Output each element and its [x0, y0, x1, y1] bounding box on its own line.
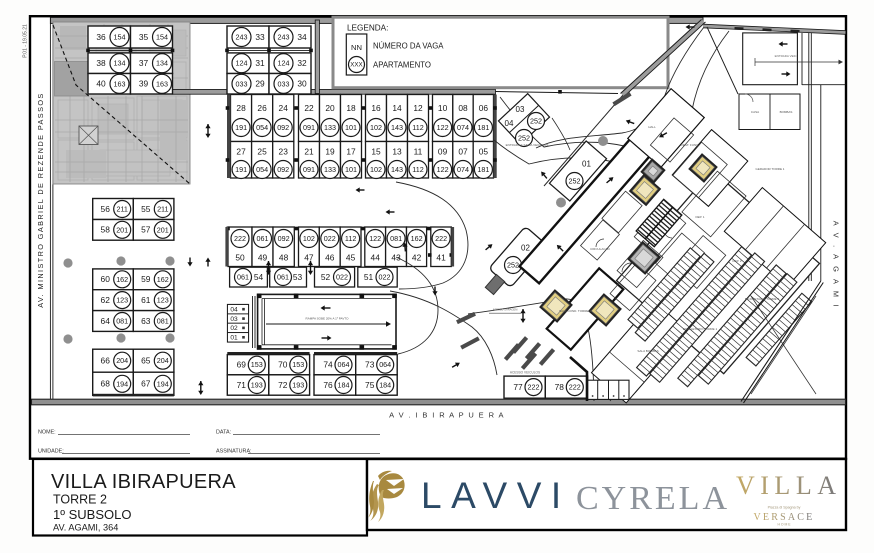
- svg-text:211: 211: [116, 205, 127, 214]
- svg-text:07: 07: [458, 147, 468, 157]
- svg-text:162: 162: [116, 275, 128, 284]
- svg-text:NÚMERO DA VAGA: NÚMERO DA VAGA: [373, 42, 444, 51]
- svg-text:252: 252: [530, 117, 542, 126]
- svg-text:32: 32: [297, 58, 307, 68]
- svg-text:133: 133: [324, 165, 336, 174]
- svg-text:03: 03: [230, 316, 238, 323]
- svg-text:60: 60: [101, 274, 111, 284]
- svg-text:NN: NN: [351, 43, 362, 52]
- svg-text:054: 054: [256, 123, 268, 132]
- svg-text:ASSINATURA:: ASSINATURA:: [216, 449, 252, 455]
- svg-text:23: 23: [279, 147, 289, 157]
- svg-text:061: 061: [237, 273, 249, 282]
- svg-text:123: 123: [157, 296, 169, 305]
- svg-text:78: 78: [555, 382, 565, 392]
- svg-text:03: 03: [516, 105, 525, 114]
- svg-text:HALL: HALL: [648, 125, 656, 129]
- svg-text:TORRE 2: TORRE 2: [53, 493, 107, 507]
- svg-text:022: 022: [324, 234, 336, 243]
- svg-text:064: 064: [379, 360, 391, 369]
- svg-text:76: 76: [323, 380, 333, 390]
- svg-text:27: 27: [236, 147, 246, 157]
- svg-text:CIRCULACAO: CIRCULACAO: [590, 247, 610, 251]
- svg-text:16: 16: [371, 103, 381, 113]
- svg-text:222: 222: [569, 383, 581, 392]
- svg-text:67: 67: [141, 379, 151, 389]
- svg-text:55: 55: [141, 204, 151, 214]
- svg-text:08: 08: [458, 103, 468, 113]
- svg-text:091: 091: [303, 123, 315, 132]
- svg-text:162: 162: [157, 275, 169, 284]
- svg-text:57: 57: [141, 225, 151, 235]
- svg-text:35: 35: [139, 32, 149, 42]
- svg-text:124: 124: [278, 59, 290, 68]
- svg-text:184: 184: [379, 381, 391, 390]
- svg-text:092: 092: [277, 123, 289, 132]
- svg-text:074: 074: [457, 123, 469, 132]
- svg-text:081: 081: [390, 234, 402, 243]
- svg-text:033: 033: [236, 79, 248, 88]
- svg-text:10: 10: [438, 103, 448, 113]
- svg-text:204: 204: [116, 356, 128, 365]
- svg-text:51: 51: [364, 272, 374, 282]
- svg-text:092: 092: [277, 165, 289, 174]
- svg-text:H O M E: H O M E: [778, 523, 792, 527]
- svg-text:66: 66: [101, 356, 111, 366]
- svg-text:143: 143: [391, 123, 403, 132]
- svg-text:APARTAMENTO: APARTAMENTO: [373, 61, 431, 70]
- svg-text:VERSACE: VERSACE: [754, 512, 815, 523]
- svg-text:204: 204: [157, 356, 169, 365]
- svg-text:77: 77: [513, 382, 523, 392]
- svg-text:222: 222: [435, 234, 447, 243]
- svg-text:ACESSO VEICULOS: ACESSO VEICULOS: [510, 371, 540, 375]
- svg-text:01: 01: [230, 335, 238, 342]
- svg-text:143: 143: [391, 165, 403, 174]
- svg-text:74: 74: [323, 360, 333, 370]
- svg-text:122: 122: [437, 123, 449, 132]
- svg-text:154: 154: [156, 33, 168, 42]
- svg-text:163: 163: [114, 79, 126, 88]
- svg-text:19: 19: [325, 147, 335, 157]
- svg-text:46: 46: [325, 253, 335, 263]
- svg-text:DATA:: DATA:: [216, 430, 231, 436]
- svg-text:21: 21: [304, 147, 314, 157]
- svg-text:102: 102: [370, 123, 382, 132]
- svg-text:1º SUBSOLO: 1º SUBSOLO: [53, 507, 131, 522]
- svg-text:194: 194: [157, 379, 169, 388]
- svg-text:061: 061: [277, 273, 289, 282]
- svg-text:BOMBAS: BOMBAS: [780, 110, 793, 114]
- svg-text:RAMPA SOBE 20% A 1º PAVTO: RAMPA SOBE 20% A 1º PAVTO: [306, 317, 350, 321]
- svg-text:054: 054: [256, 165, 268, 174]
- svg-text:CASA: CASA: [751, 110, 759, 114]
- svg-text:47: 47: [304, 253, 314, 263]
- svg-text:091: 091: [303, 165, 315, 174]
- svg-text:074: 074: [457, 165, 469, 174]
- svg-text:14: 14: [392, 103, 402, 113]
- svg-text:73: 73: [365, 360, 375, 370]
- svg-text:134: 134: [114, 59, 126, 68]
- svg-text:GERADOR TORRE 1: GERADOR TORRE 1: [756, 167, 785, 171]
- svg-text:44: 44: [371, 253, 381, 263]
- svg-text:69: 69: [237, 360, 247, 370]
- svg-text:102: 102: [370, 165, 382, 174]
- svg-text:181: 181: [477, 123, 489, 132]
- svg-text:02: 02: [521, 244, 530, 253]
- svg-text:37: 37: [139, 58, 149, 68]
- svg-text:222: 222: [234, 234, 246, 243]
- svg-text:SALA BOMBAS: SALA BOMBAS: [637, 349, 658, 353]
- svg-text:64: 64: [101, 316, 111, 326]
- svg-text:081: 081: [157, 317, 169, 326]
- svg-text:153: 153: [292, 360, 304, 369]
- svg-text:20: 20: [325, 103, 335, 113]
- svg-text:SALA COND. TORRE 2: SALA COND. TORRE 2: [559, 309, 591, 313]
- svg-text:42: 42: [412, 253, 422, 263]
- svg-text:33: 33: [255, 32, 265, 42]
- svg-text:65: 65: [141, 356, 151, 366]
- svg-text:13: 13: [392, 147, 402, 157]
- svg-text:133: 133: [324, 123, 336, 132]
- svg-text:VILLA IBIRAPUERA: VILLA IBIRAPUERA: [51, 471, 236, 493]
- svg-text:04: 04: [505, 119, 514, 128]
- svg-text:163: 163: [156, 79, 168, 88]
- svg-text:24: 24: [279, 103, 289, 113]
- svg-text:154: 154: [114, 33, 126, 42]
- svg-text:124: 124: [236, 59, 248, 68]
- svg-text:45: 45: [346, 253, 356, 263]
- svg-text:49: 49: [258, 253, 268, 263]
- svg-text:41: 41: [436, 253, 446, 263]
- svg-text:162: 162: [411, 234, 423, 243]
- svg-text:181: 181: [477, 165, 489, 174]
- svg-text:Piazza di Spagna by: Piazza di Spagna by: [768, 506, 801, 510]
- svg-text:122: 122: [437, 165, 449, 174]
- svg-text:17: 17: [346, 147, 356, 157]
- svg-text:54: 54: [254, 272, 264, 282]
- svg-text:191: 191: [235, 165, 247, 174]
- svg-text:25: 25: [257, 147, 267, 157]
- svg-text:62: 62: [101, 295, 111, 305]
- svg-text:56: 56: [101, 204, 111, 214]
- svg-text:61: 61: [141, 295, 151, 305]
- svg-text:04: 04: [230, 307, 238, 314]
- svg-text:UNIDADE:: UNIDADE:: [38, 449, 64, 455]
- svg-text:102: 102: [303, 234, 315, 243]
- svg-text:252: 252: [518, 134, 530, 143]
- svg-text:36: 36: [96, 32, 106, 42]
- svg-text:11: 11: [414, 147, 423, 157]
- svg-text:201: 201: [116, 225, 128, 234]
- svg-text:191: 191: [235, 123, 247, 132]
- svg-text:52: 52: [321, 272, 331, 282]
- svg-text:AV. MINISTRO GABRIEL DE REZEND: AV. MINISTRO GABRIEL DE REZENDE PASSOS: [36, 92, 45, 307]
- svg-text:59: 59: [141, 274, 151, 284]
- svg-text:34: 34: [297, 32, 307, 42]
- svg-text:ACESSO GARAGEM: ACESSO GARAGEM: [493, 308, 518, 312]
- svg-text:NOME:: NOME:: [38, 430, 56, 436]
- svg-text:CYRELA: CYRELA: [576, 480, 730, 517]
- svg-text:A V . I B I R A P U E R A: A V . I B I R A P U E R A: [389, 411, 505, 420]
- svg-text:DEP. 1: DEP. 1: [695, 215, 704, 219]
- svg-text:101: 101: [345, 123, 357, 132]
- svg-text:P.01 - 19.05.21: P.01 - 19.05.21: [23, 24, 29, 58]
- svg-text:BICICLETARIO TORRE 2: BICICLETARIO TORRE 2: [745, 297, 780, 301]
- svg-text:123: 123: [116, 296, 128, 305]
- svg-text:75: 75: [365, 380, 375, 390]
- svg-text:A V . A G A M I: A V . A G A M I: [832, 221, 841, 310]
- svg-text:022: 022: [379, 273, 391, 282]
- svg-text:38: 38: [96, 58, 106, 68]
- svg-text:022: 022: [336, 273, 348, 282]
- svg-text:53: 53: [293, 272, 303, 282]
- svg-text:134: 134: [156, 59, 168, 68]
- svg-text:63: 63: [141, 316, 151, 326]
- svg-text:184: 184: [338, 381, 350, 390]
- svg-text:112: 112: [345, 234, 356, 243]
- svg-text:081: 081: [116, 317, 128, 326]
- svg-text:22: 22: [304, 103, 314, 113]
- svg-text:BICICLETARIO TORRE 1: BICICLETARIO TORRE 1: [683, 327, 718, 331]
- svg-text:05: 05: [479, 147, 489, 157]
- svg-text:31: 31: [255, 58, 265, 68]
- svg-text:VEST. FUNC.: VEST. FUNC.: [681, 143, 700, 147]
- svg-text:70: 70: [278, 360, 288, 370]
- svg-text:02: 02: [230, 325, 238, 332]
- svg-text:71: 71: [237, 380, 247, 390]
- svg-text:30: 30: [297, 79, 307, 89]
- svg-text:122: 122: [369, 234, 381, 243]
- svg-text:153: 153: [251, 360, 263, 369]
- svg-text:201: 201: [157, 225, 169, 234]
- svg-text:222: 222: [528, 383, 540, 392]
- svg-text:211: 211: [157, 205, 168, 214]
- svg-text:VILLA: VILLA: [736, 471, 841, 500]
- svg-text:LEGENDA:: LEGENDA:: [347, 24, 388, 33]
- svg-text:092: 092: [278, 234, 290, 243]
- svg-text:243: 243: [278, 33, 290, 42]
- svg-text:252: 252: [507, 261, 519, 270]
- svg-text:39: 39: [139, 79, 149, 89]
- svg-text:26: 26: [257, 103, 267, 113]
- svg-text:101: 101: [345, 165, 357, 174]
- svg-text:033: 033: [278, 79, 290, 88]
- svg-text:ENTRADA E SAIDA VEICULOS: ENTRADA E SAIDA VEICULOS: [506, 143, 549, 147]
- svg-text:DEP. 2: DEP. 2: [732, 259, 741, 263]
- svg-text:061: 061: [257, 234, 269, 243]
- svg-text:112: 112: [412, 165, 423, 174]
- svg-text:194: 194: [116, 379, 128, 388]
- svg-text:15: 15: [371, 147, 381, 157]
- svg-text:193: 193: [292, 381, 304, 390]
- svg-text:243: 243: [236, 33, 248, 42]
- svg-text:LAVVI: LAVVI: [421, 475, 571, 516]
- svg-text:ENTRADA VEIC.: ENTRADA VEIC.: [775, 54, 798, 58]
- svg-text:58: 58: [101, 225, 111, 235]
- svg-text:28: 28: [236, 103, 246, 113]
- svg-text:12: 12: [413, 103, 423, 113]
- svg-text:06: 06: [479, 103, 489, 113]
- svg-text:72: 72: [278, 380, 288, 390]
- svg-text:112: 112: [412, 123, 423, 132]
- svg-text:18: 18: [346, 103, 356, 113]
- svg-text:064: 064: [338, 360, 350, 369]
- svg-text:XXX: XXX: [350, 62, 362, 69]
- svg-text:193: 193: [251, 381, 263, 390]
- svg-text:68: 68: [101, 379, 111, 389]
- svg-text:48: 48: [279, 253, 289, 263]
- svg-text:29: 29: [255, 79, 265, 89]
- svg-text:40: 40: [96, 79, 106, 89]
- svg-text:AV. AGAMI, 364: AV. AGAMI, 364: [53, 523, 118, 533]
- svg-text:01: 01: [582, 160, 591, 169]
- svg-text:09: 09: [438, 147, 448, 157]
- svg-text:252: 252: [569, 177, 581, 186]
- svg-text:50: 50: [235, 253, 245, 263]
